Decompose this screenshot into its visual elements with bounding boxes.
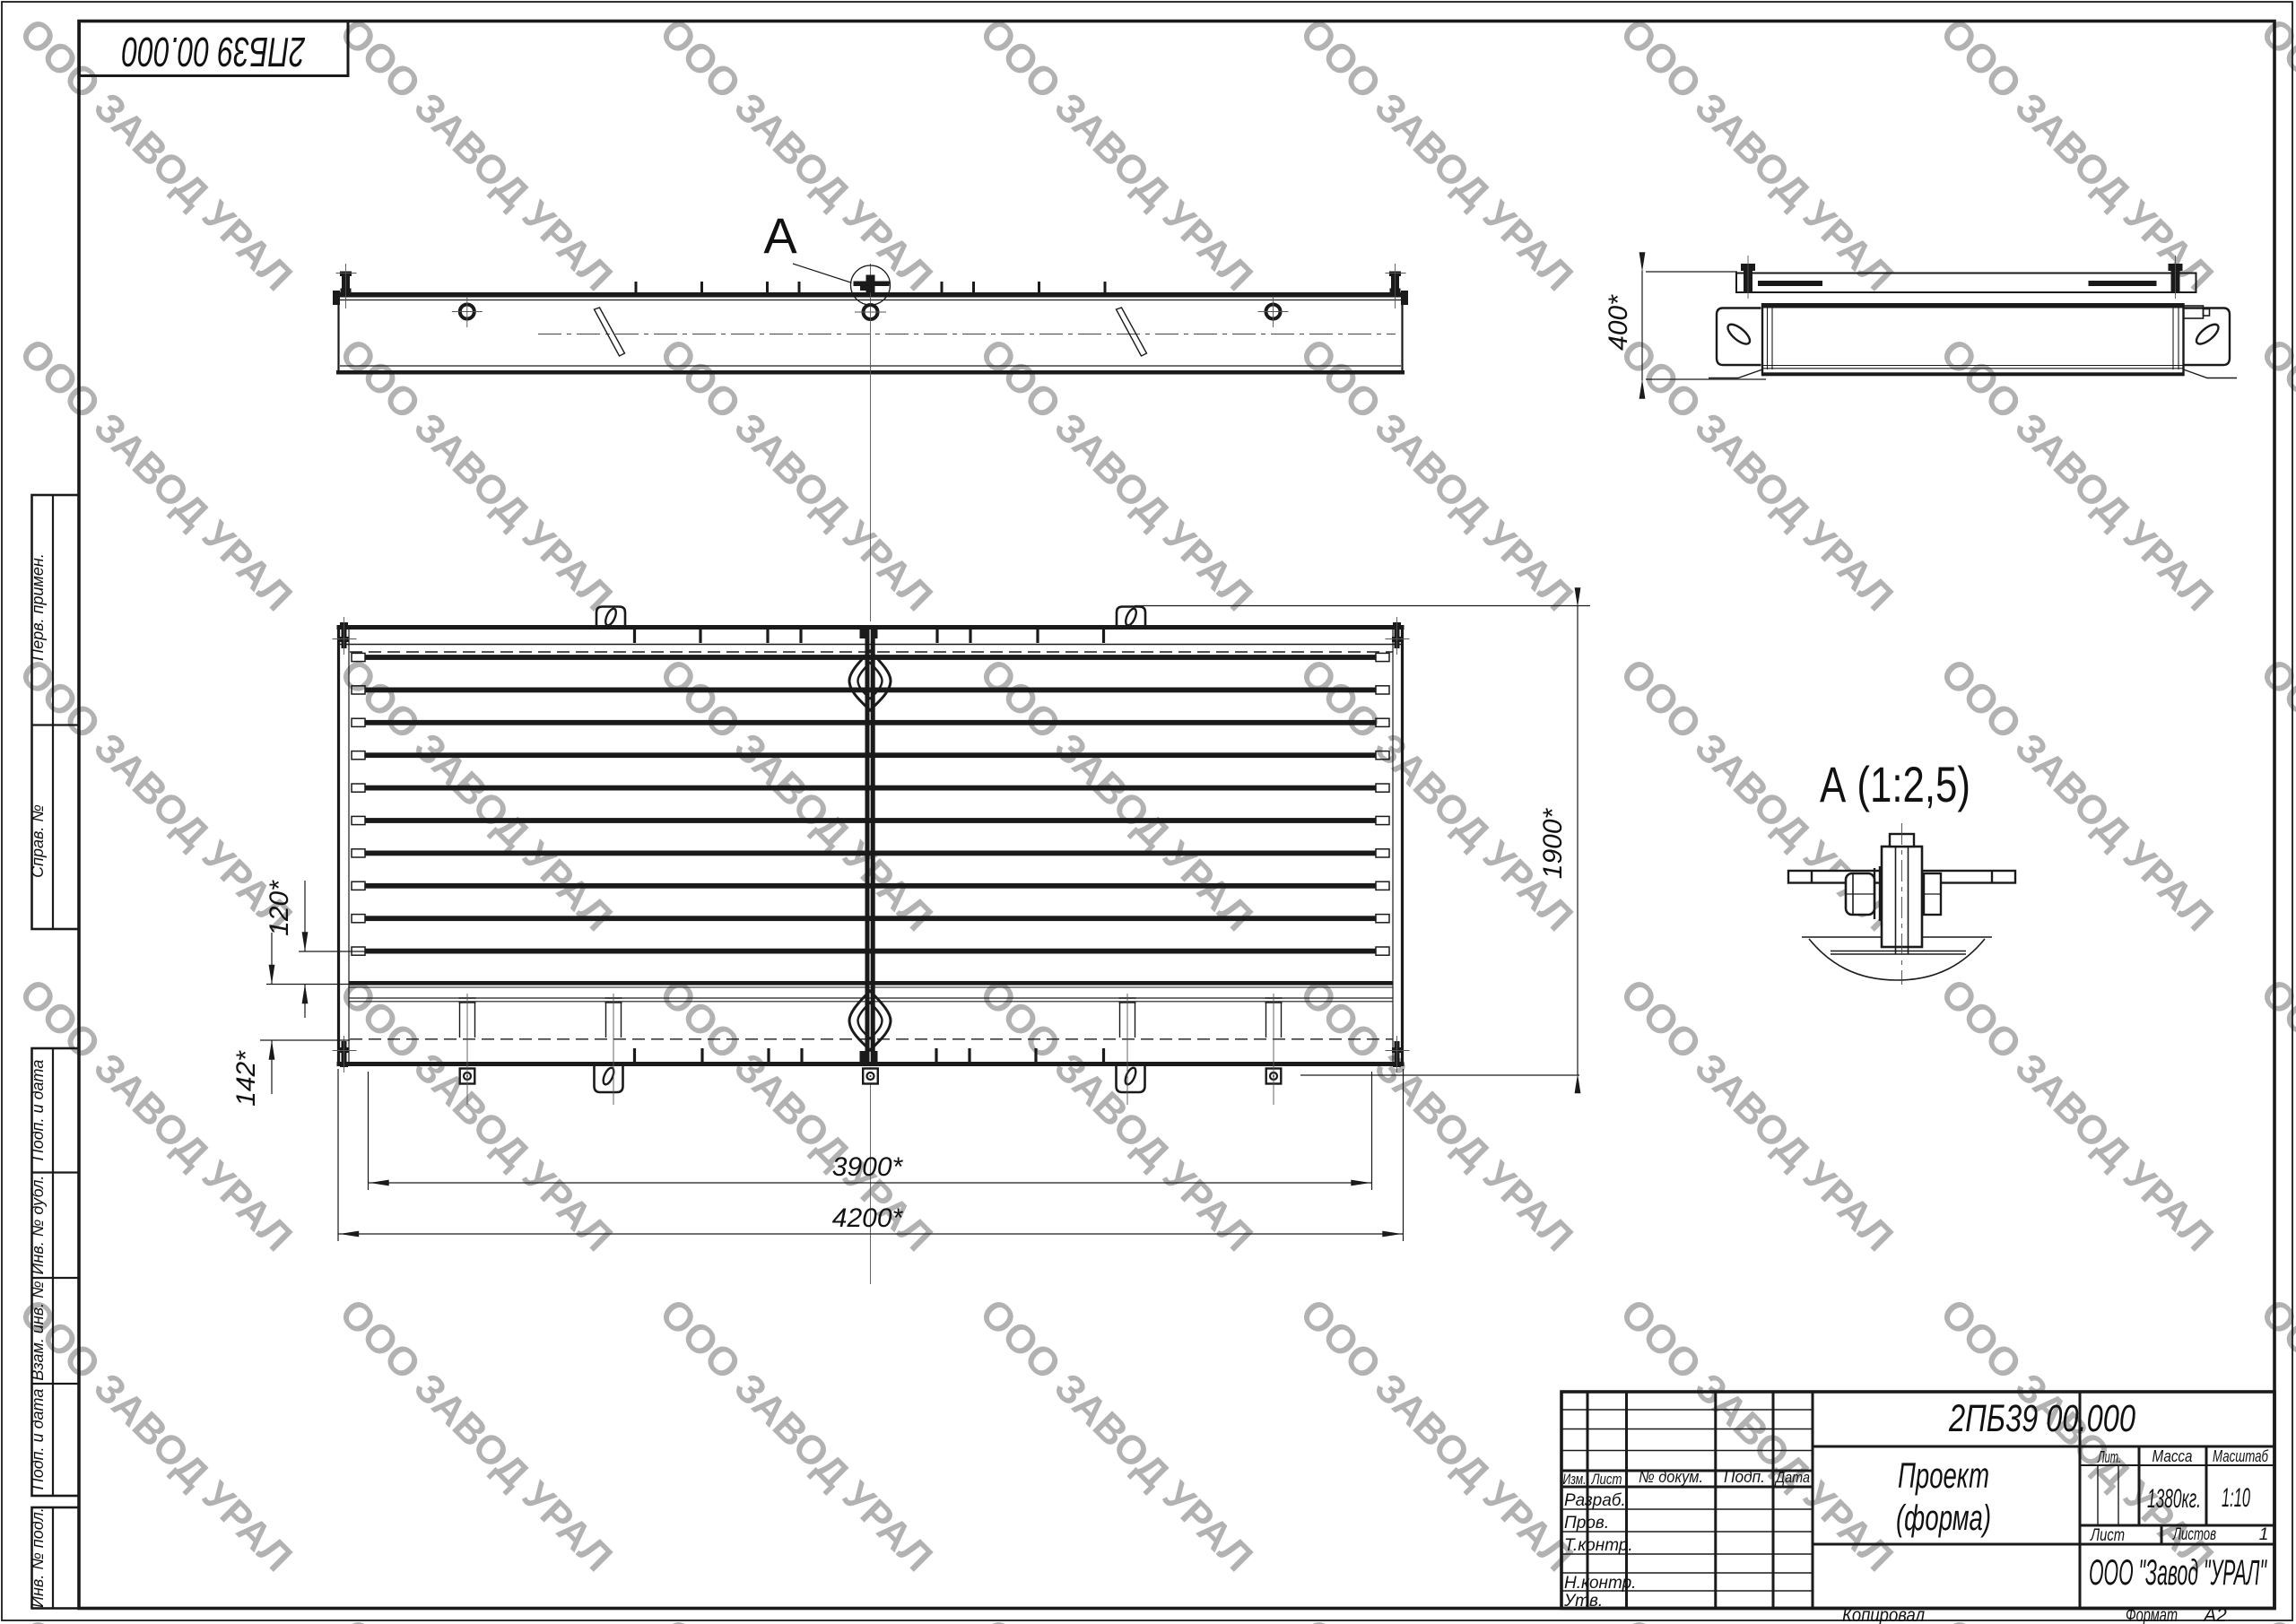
svg-text:Инв. № дубл.: Инв. № дубл.: [29, 1176, 47, 1275]
svg-text:1900*: 1900*: [1538, 807, 1568, 879]
svg-text:Формат: Формат: [2126, 1605, 2178, 1624]
svg-text:2ПБ39 00.000: 2ПБ39 00.000: [122, 29, 306, 75]
svg-text:Подп. и дата: Подп. и дата: [29, 1060, 47, 1161]
svg-text:А: А: [763, 207, 797, 264]
svg-text:Пров.: Пров.: [1564, 1514, 1609, 1533]
svg-text:Проект: Проект: [1898, 1456, 1989, 1496]
svg-text:Подп.: Подп.: [1724, 1468, 1765, 1486]
svg-text:1380кг.: 1380кг.: [2147, 1484, 2201, 1514]
svg-text:Копировал: Копировал: [1842, 1605, 1925, 1624]
svg-text:Дата: Дата: [1774, 1469, 1810, 1486]
svg-text:Лист: Лист: [2089, 1526, 2125, 1545]
svg-text:120*: 120*: [265, 880, 294, 936]
svg-text:Лист: Лист: [1591, 1471, 1622, 1488]
svg-text:Справ. №: Справ. №: [29, 804, 47, 878]
svg-text:1: 1: [2259, 1525, 2269, 1544]
svg-text:Взам. инв. №: Взам. инв. №: [29, 1281, 47, 1380]
svg-text:А (1:2,5): А (1:2,5): [1820, 756, 1970, 812]
svg-text:3900*: 3900*: [832, 1152, 904, 1182]
svg-text:ООО "Завод "УРАЛ": ООО "Завод "УРАЛ": [2089, 1553, 2267, 1593]
svg-text:Изм.: Изм.: [1563, 1471, 1587, 1488]
svg-text:Подп. и дата: Подп. и дата: [29, 1389, 47, 1490]
svg-text:1:10: 1:10: [2222, 1483, 2250, 1513]
svg-text:400*: 400*: [1604, 294, 1633, 351]
svg-text:Лит.: Лит.: [2097, 1448, 2121, 1466]
svg-text:Н.контр.: Н.контр.: [1564, 1574, 1636, 1593]
svg-text:Перв. примен.: Перв. примен.: [29, 553, 47, 661]
svg-text:Утв.: Утв.: [1563, 1592, 1603, 1611]
svg-text:4200*: 4200*: [832, 1203, 904, 1233]
svg-text:Т.контр.: Т.контр.: [1564, 1536, 1633, 1555]
svg-text:№ докум.: № докум.: [1639, 1468, 1703, 1486]
svg-text:Масштаб: Масштаб: [2213, 1447, 2269, 1465]
svg-text:А2: А2: [2202, 1605, 2227, 1624]
svg-text:Инв. № подл.: Инв. № подл.: [29, 1507, 47, 1608]
svg-text:142*: 142*: [231, 1050, 261, 1107]
svg-text:2ПБ39 00.000: 2ПБ39 00.000: [1948, 1397, 2135, 1440]
svg-text:Масса: Масса: [2152, 1447, 2193, 1465]
svg-text:(форма): (форма): [1896, 1498, 1991, 1538]
svg-text:Разраб.: Разраб.: [1564, 1491, 1626, 1510]
svg-text:Листов: Листов: [2172, 1525, 2216, 1544]
